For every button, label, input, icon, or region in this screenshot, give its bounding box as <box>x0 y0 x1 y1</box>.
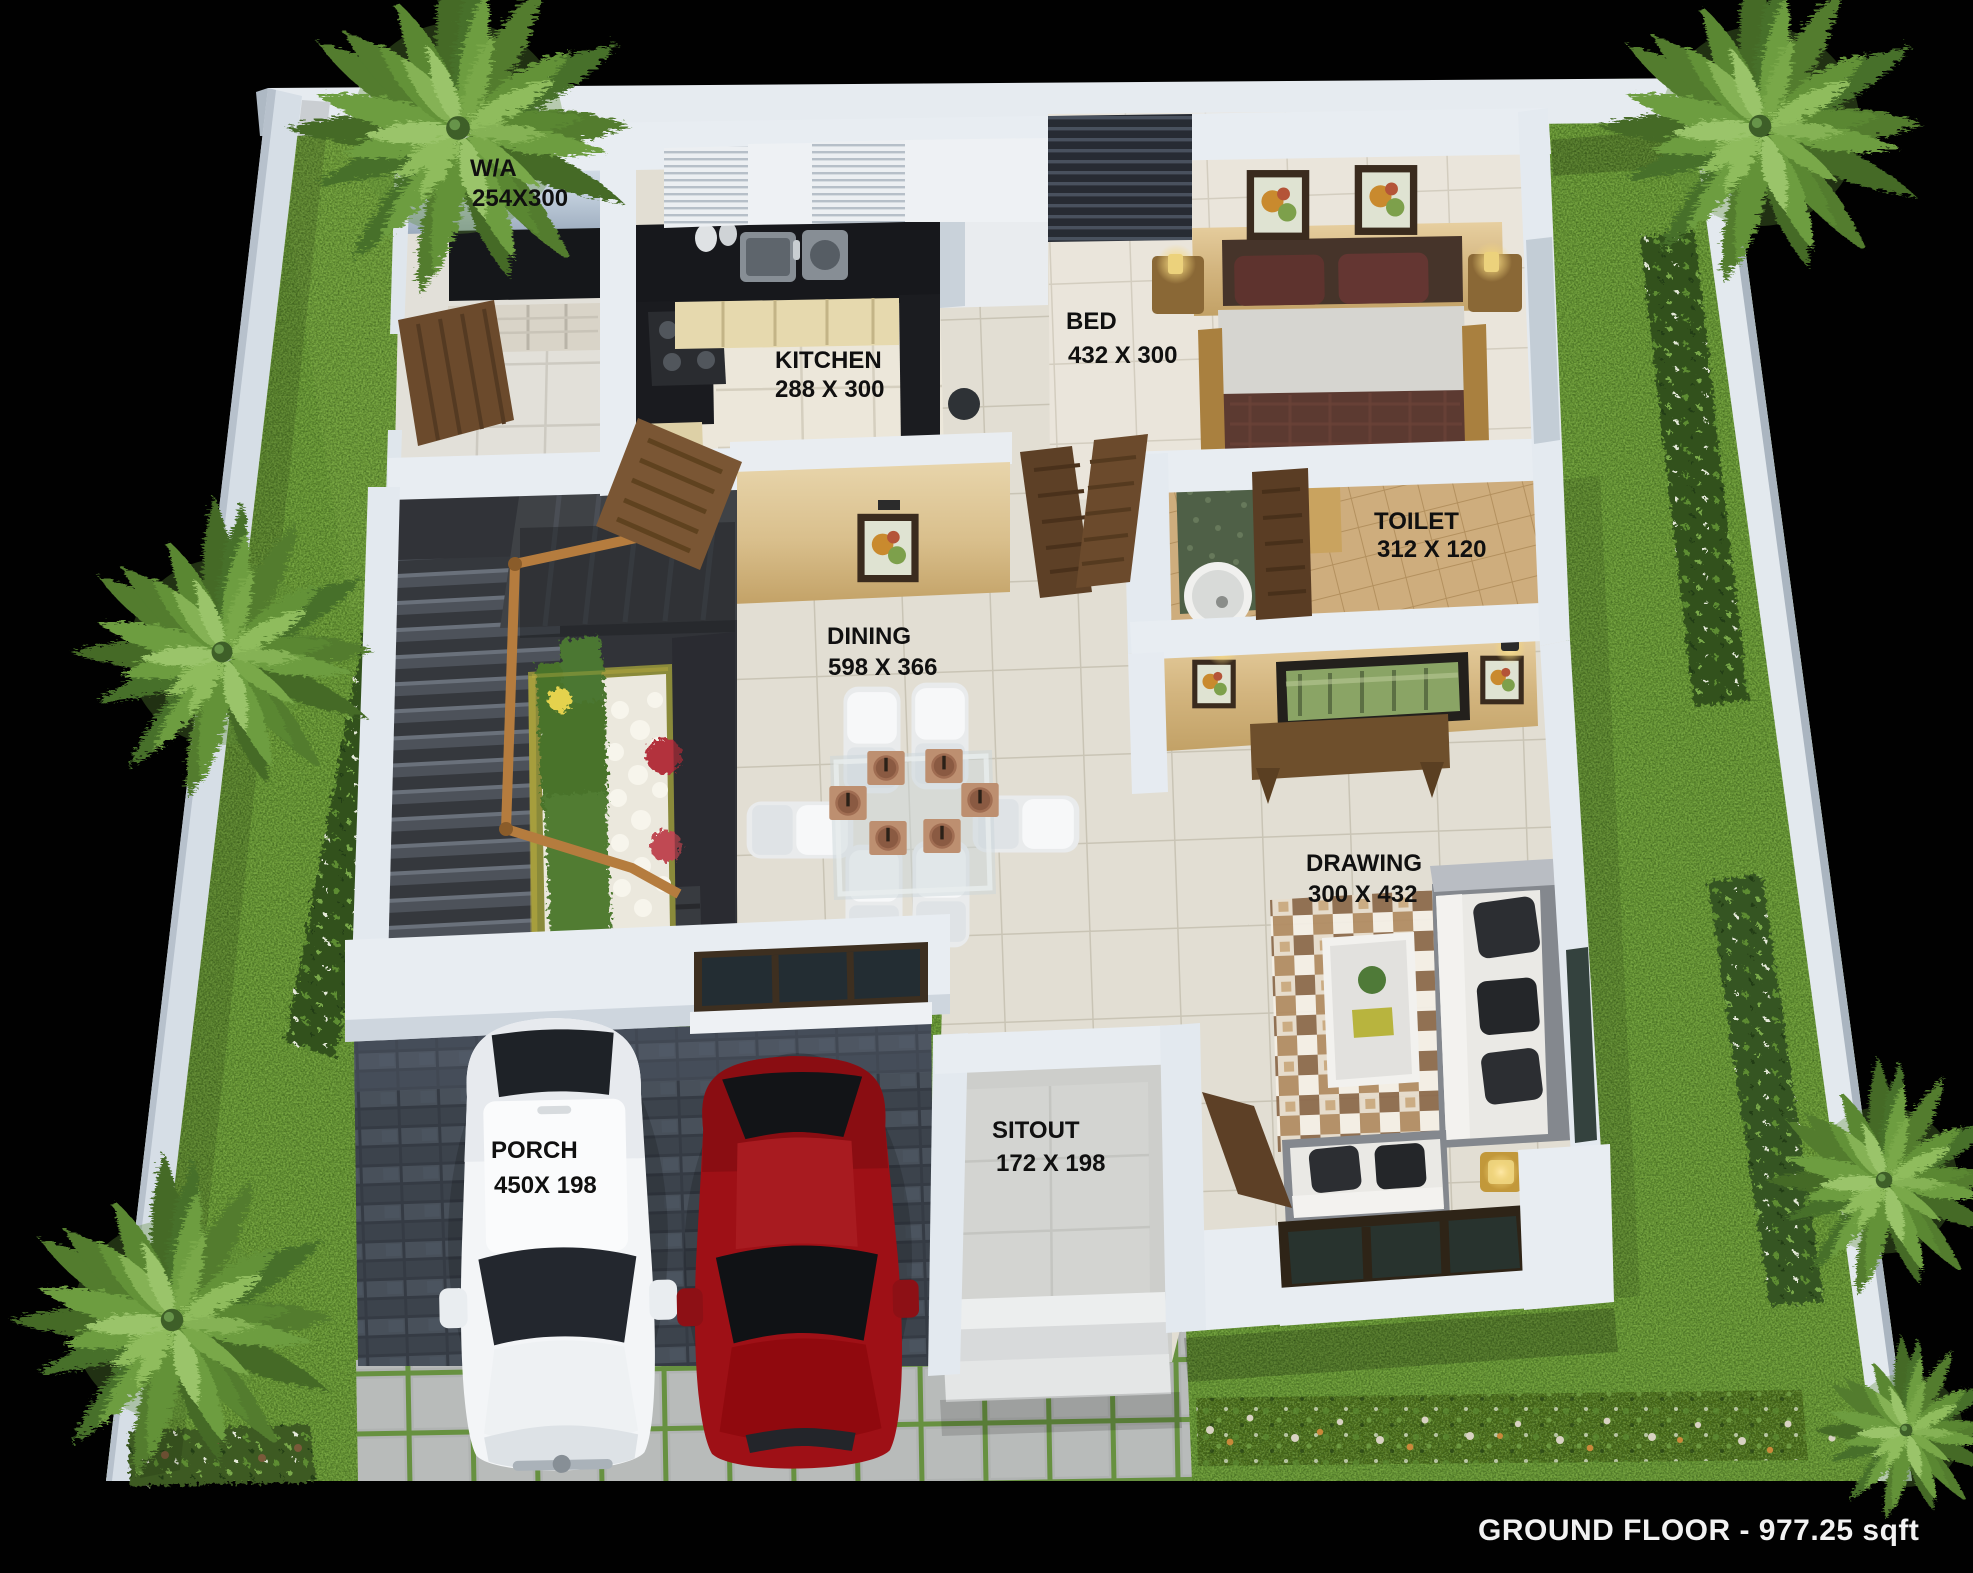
svg-text:BED: BED <box>1066 308 1117 335</box>
svg-text:300 X 432: 300 X 432 <box>1308 881 1417 908</box>
svg-text:KITCHEN: KITCHEN <box>775 347 882 374</box>
svg-text:598 X 366: 598 X 366 <box>828 654 937 681</box>
svg-text:GROUND FLOOR - 977.25 sqft: GROUND FLOOR - 977.25 sqft <box>1478 1514 1919 1547</box>
svg-text:DINING: DINING <box>827 623 911 650</box>
svg-text:288 X 300: 288 X 300 <box>775 376 884 403</box>
svg-text:450X 198: 450X 198 <box>494 1172 597 1199</box>
svg-text:432 X 300: 432 X 300 <box>1068 342 1177 369</box>
svg-text:TOILET: TOILET <box>1374 508 1459 535</box>
svg-text:312 X 120: 312 X 120 <box>1377 536 1486 563</box>
svg-text:DRAWING: DRAWING <box>1306 850 1422 877</box>
svg-text:PORCH: PORCH <box>491 1137 578 1164</box>
svg-text:254X300: 254X300 <box>472 185 568 212</box>
svg-text:SITOUT: SITOUT <box>992 1117 1080 1144</box>
svg-text:172 X 198: 172 X 198 <box>996 1150 1105 1177</box>
svg-text:W/A: W/A <box>470 155 517 182</box>
